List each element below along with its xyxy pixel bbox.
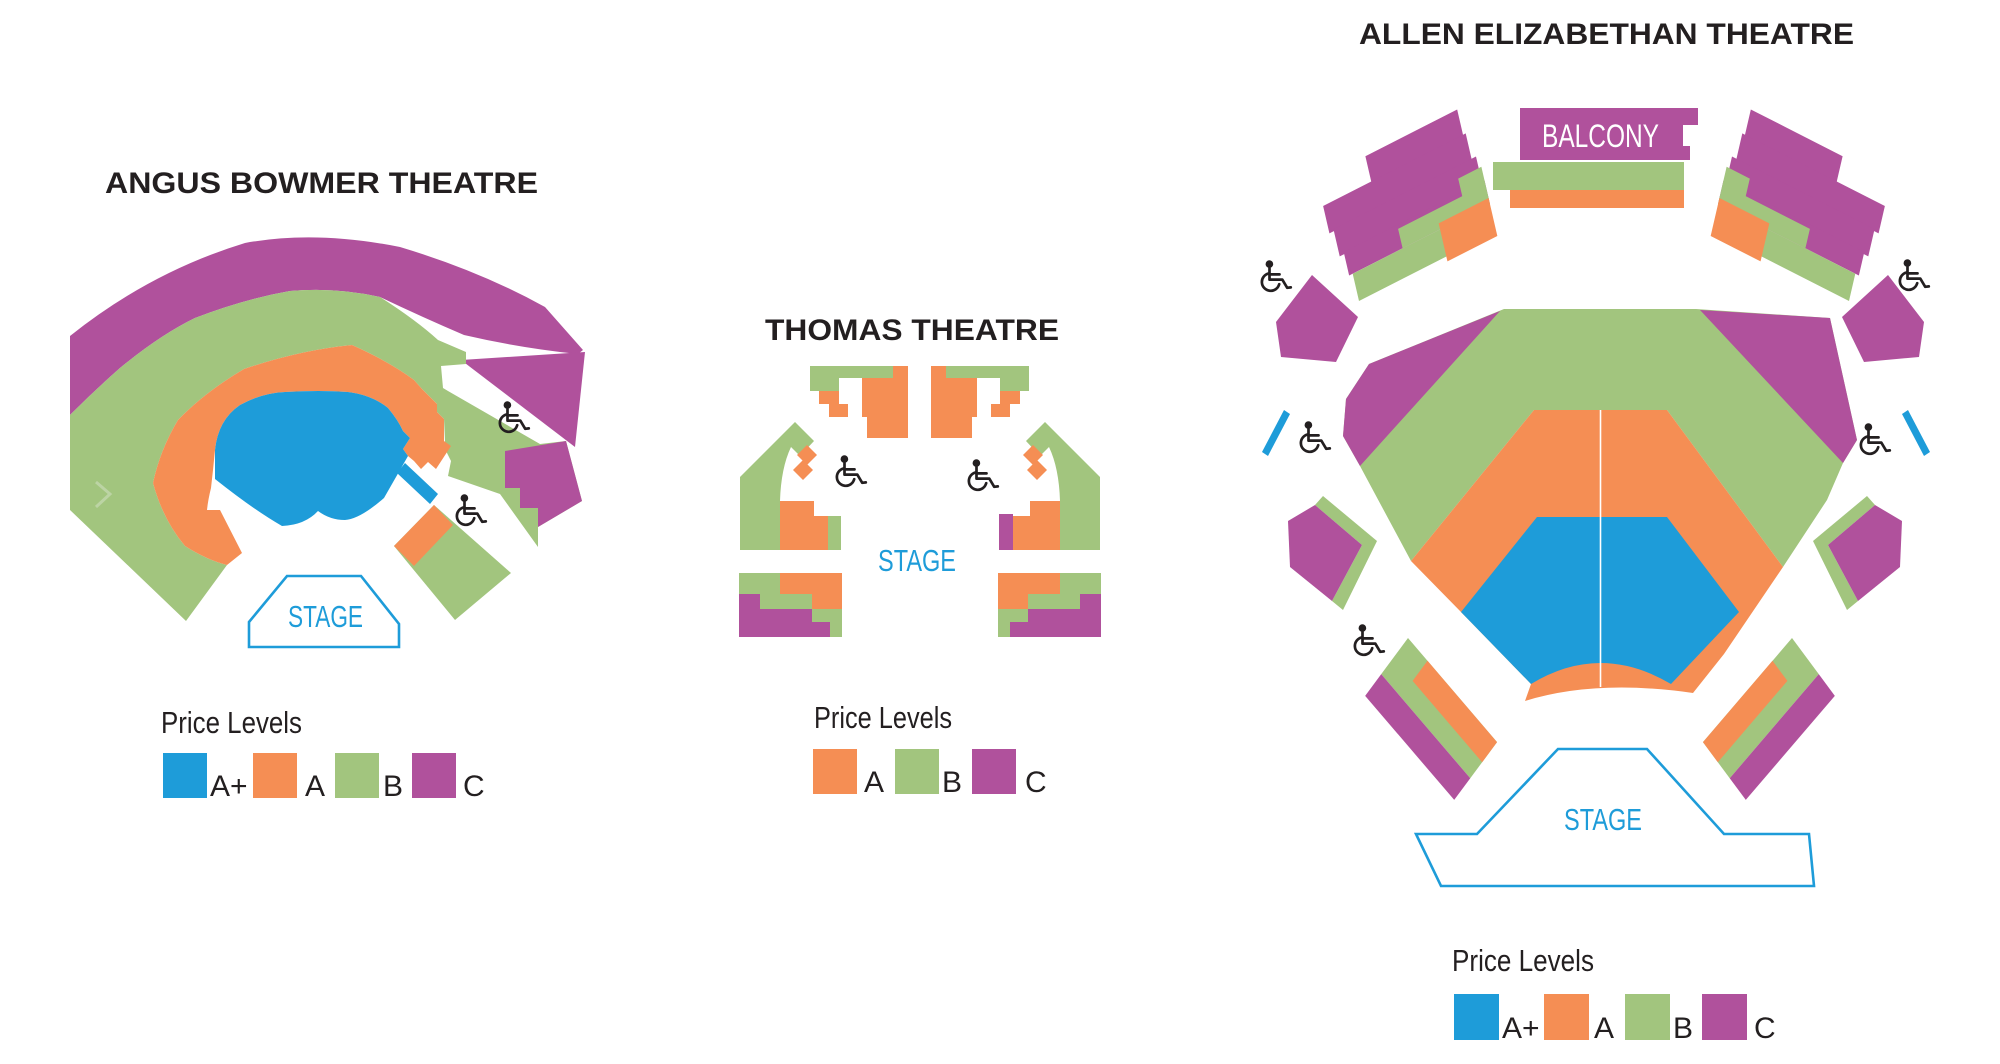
svg-text:THOMAS THEATRE: THOMAS THEATRE [765,314,1059,347]
svg-text:Price Levels: Price Levels [161,705,302,740]
svg-text:C: C [1754,1012,1776,1045]
svg-text:B: B [383,770,403,803]
svg-text:STAGE: STAGE [1564,802,1642,837]
svg-text:C: C [463,770,485,803]
svg-text:ALLEN ELIZABETHAN THEATRE: ALLEN ELIZABETHAN THEATRE [1359,18,1854,51]
svg-text:STAGE: STAGE [878,543,956,578]
svg-text:A: A [864,766,884,799]
svg-text:A+: A+ [1502,1012,1540,1045]
svg-text:Price Levels: Price Levels [1452,943,1594,978]
svg-text:STAGE: STAGE [288,599,363,634]
svg-text:BALCONY: BALCONY [1542,118,1659,154]
svg-text:B: B [1673,1012,1693,1045]
svg-text:ANGUS BOWMER THEATRE: ANGUS BOWMER THEATRE [105,167,538,200]
svg-text:A: A [1594,1012,1614,1045]
svg-text:C: C [1025,766,1047,799]
svg-text:A: A [305,770,325,803]
svg-text:Price Levels: Price Levels [814,700,952,735]
svg-text:B: B [942,766,962,799]
svg-text:A+: A+ [210,770,248,803]
